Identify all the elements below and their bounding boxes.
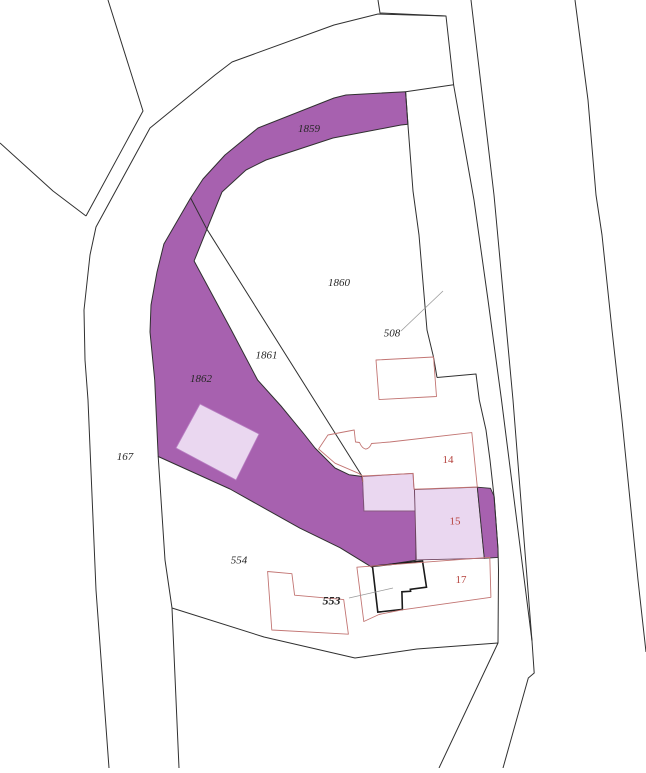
svg-text:1862: 1862 <box>190 373 213 385</box>
svg-text:553: 553 <box>323 594 341 608</box>
svg-text:1859: 1859 <box>298 123 321 135</box>
svg-text:508: 508 <box>384 328 401 340</box>
svg-text:554: 554 <box>231 555 248 567</box>
svg-text:14: 14 <box>443 454 455 466</box>
svg-text:17: 17 <box>456 574 468 586</box>
svg-text:15: 15 <box>450 516 462 528</box>
svg-text:167: 167 <box>117 451 134 463</box>
svg-text:1861: 1861 <box>256 349 278 361</box>
svg-text:1860: 1860 <box>328 277 351 289</box>
